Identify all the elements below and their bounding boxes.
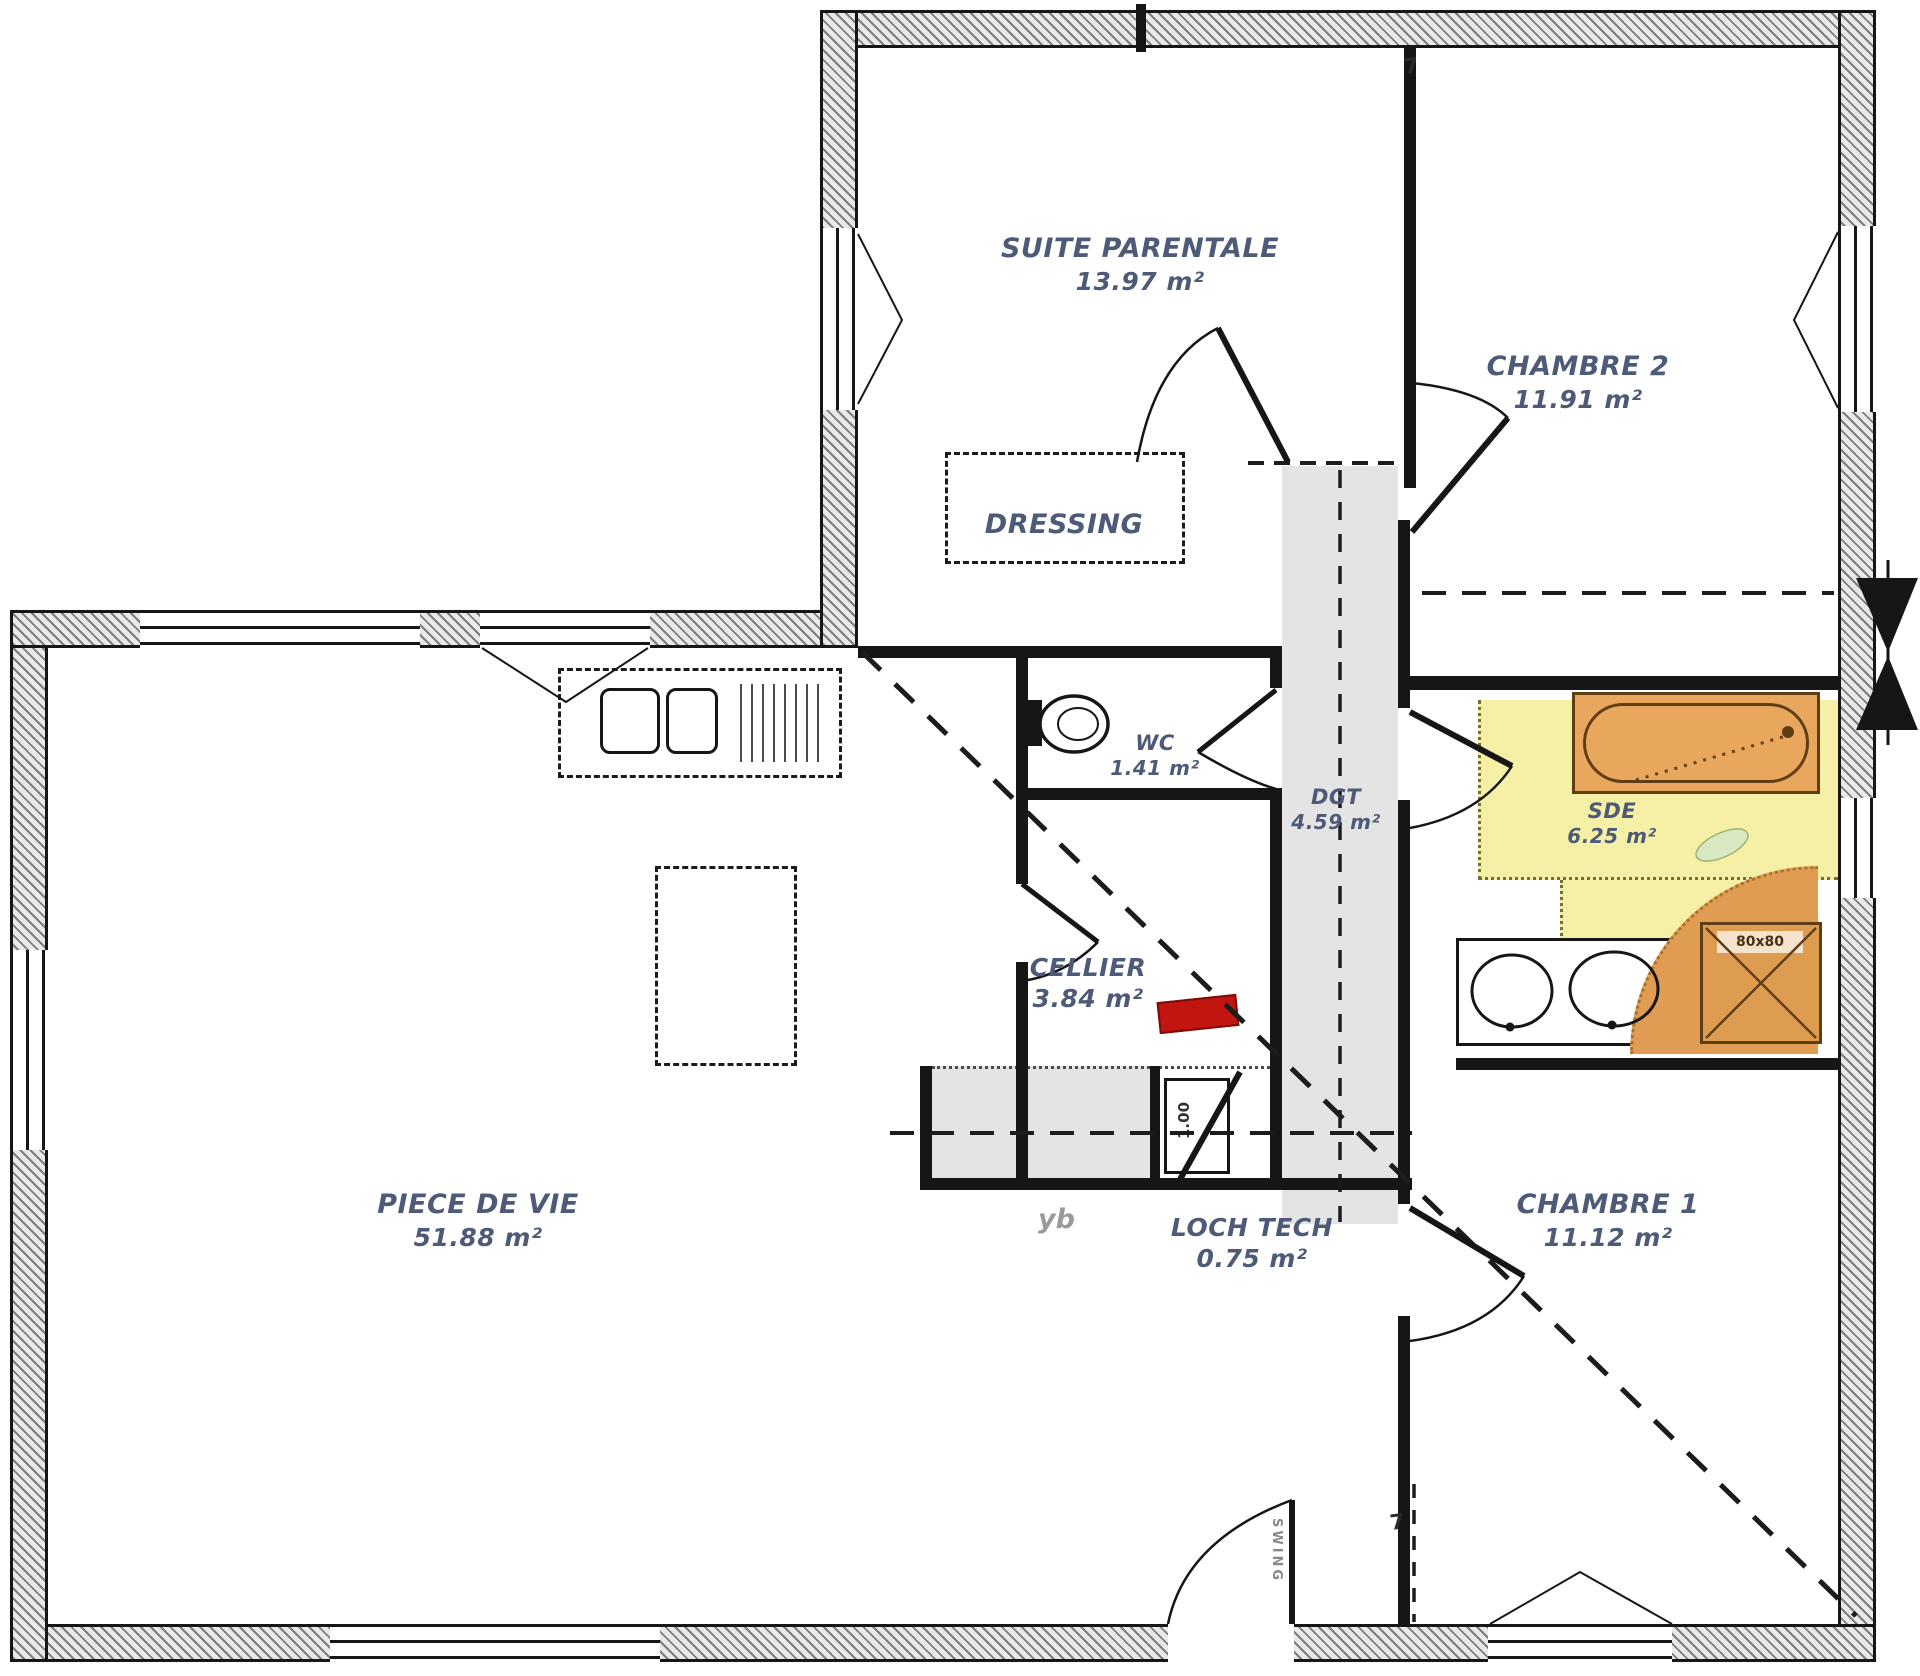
room-area: 3.84 m² — [918, 983, 1258, 1014]
room-label-cellier: CELLIER 3.84 m² — [918, 952, 1258, 1015]
window-living-north-large — [140, 610, 420, 648]
room-area: 11.91 m² — [1408, 384, 1748, 415]
interior-wall — [1398, 800, 1410, 1204]
interior-wall — [1398, 520, 1410, 708]
room-name: DRESSING — [944, 508, 1184, 542]
window-kitchen-north — [480, 610, 650, 648]
interior-wall — [1398, 1316, 1410, 1624]
bathtub-rim — [1583, 703, 1809, 783]
chambre2-door-leaf — [1412, 418, 1508, 532]
window-sde-east — [1838, 798, 1876, 898]
room-area: 13.97 m² — [970, 266, 1310, 297]
bathtub — [1572, 692, 1820, 794]
room-area: 1.41 m² — [985, 756, 1325, 781]
interior-wall — [1456, 1058, 1838, 1070]
chambre1-window-triangle — [1490, 1572, 1672, 1624]
room-label-dressing: DRESSING — [944, 508, 1184, 542]
interior-wall — [920, 1066, 932, 1190]
kitchen-sink-bowl-right — [666, 688, 718, 754]
window-chambre1-south — [1488, 1624, 1672, 1662]
window-living-west — [10, 950, 48, 1150]
chambre2-window-triangle — [1794, 232, 1838, 408]
interior-wall — [1404, 46, 1416, 488]
window-chambre2-east — [1838, 226, 1876, 412]
room-name: CHAMBRE 1 — [1438, 1188, 1778, 1222]
exterior-wall-top — [820, 10, 1876, 48]
dimension-tick-top-wall — [1136, 4, 1146, 52]
dimension-mark-bottom: 7 — [1388, 1509, 1406, 1535]
room-label-sde: SDE 6.25 m² — [1442, 798, 1782, 849]
watermark-text: yb — [1038, 1204, 1075, 1235]
interior-wall — [1016, 800, 1028, 884]
room-name: CELLIER — [918, 952, 1258, 983]
room-area: 6.25 m² — [1442, 824, 1782, 849]
kitchen-drainer — [740, 684, 826, 762]
room-area: 0.75 m² — [1082, 1243, 1422, 1274]
water-heater-unit: 1.00 — [1164, 1078, 1230, 1174]
room-name: CHAMBRE 2 — [1408, 350, 1748, 384]
room-name: SDE — [1442, 798, 1782, 824]
shower-size-label: 80x80 — [1717, 931, 1803, 953]
interior-wall — [1150, 1066, 1160, 1190]
room-name: SUITE PARENTALE — [970, 232, 1310, 266]
floor-plan: 80x80 1.00 — [0, 0, 1920, 1676]
interior-wall — [1270, 658, 1282, 688]
room-label-suite-parentale: SUITE PARENTALE 13.97 m² — [970, 232, 1310, 297]
entry-door-opening — [1168, 1624, 1294, 1662]
room-name: WC — [985, 730, 1325, 756]
dining-table-outline — [655, 866, 797, 1066]
room-label-wc: WC 1.41 m² — [985, 730, 1325, 781]
room-name: PIECE DE VIE — [308, 1188, 648, 1222]
entry-swing-label: SWING — [1269, 1518, 1284, 1583]
interior-wall — [858, 646, 1282, 658]
cellier-door-leaf — [1022, 884, 1098, 942]
interior-wall — [920, 1178, 1412, 1190]
room-area: 11.12 m² — [1438, 1222, 1778, 1253]
shower-tray: 80x80 — [1700, 922, 1822, 1044]
kitchen-sink-bowl-left — [600, 688, 660, 754]
water-heater-dim-label: 1.00 — [1175, 1102, 1193, 1139]
room-area: 51.88 m² — [308, 1222, 648, 1253]
entry-hall-area — [932, 1066, 1150, 1178]
room-label-chambre-1: CHAMBRE 1 11.12 m² — [1438, 1188, 1778, 1253]
chambre1-door-arc — [1410, 1276, 1524, 1341]
interior-wall — [1270, 790, 1282, 1190]
suite-door-leaf — [1218, 328, 1288, 462]
window-living-south-bay — [330, 1624, 660, 1662]
exterior-wall-left-block-top — [10, 610, 858, 648]
room-label-loch-tech: LOCH TECH 0.75 m² — [1082, 1212, 1422, 1275]
room-name: LOCH TECH — [1082, 1212, 1422, 1243]
room-label-chambre-2: CHAMBRE 2 11.91 m² — [1408, 350, 1748, 415]
dimension-mark-top: 7 — [1402, 53, 1420, 79]
corridor-area — [1282, 466, 1398, 1224]
interior-wall — [1410, 676, 1838, 690]
room-label-piece-de-vie: PIECE DE VIE 51.88 m² — [308, 1188, 648, 1253]
window-suite-west — [820, 228, 858, 410]
suite-door-arc — [1137, 328, 1218, 462]
suite-window-triangle — [858, 234, 902, 404]
